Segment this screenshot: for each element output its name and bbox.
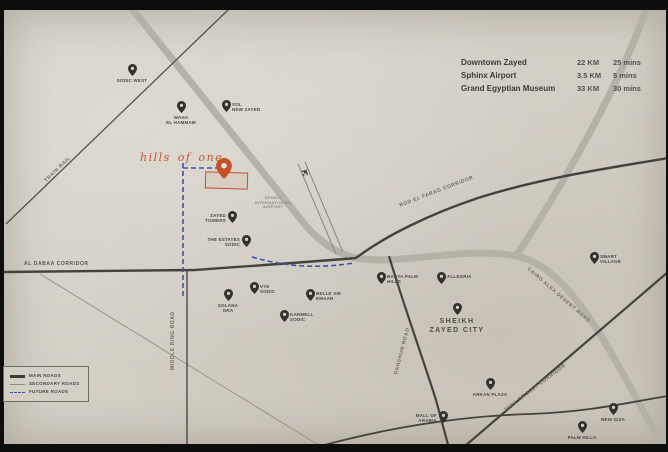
legend-row-secondary-roads: SECONDARY ROADS bbox=[10, 380, 82, 388]
karmell-sodic-label: KARMELLSODIC bbox=[290, 312, 313, 323]
palm-hills-pin-icon bbox=[578, 421, 587, 433]
allegria-pin-icon bbox=[437, 272, 446, 284]
mall-of-arabia-label: MALL OFARABIA bbox=[357, 413, 437, 424]
destination-time: 30 mins bbox=[613, 84, 655, 93]
arkan-plaza-label: ARKAN PLAZA bbox=[450, 392, 530, 397]
distance-row: Sphinx Airport 3.5 KM 5 mins bbox=[461, 69, 655, 82]
destination-distance: 22 KM bbox=[577, 58, 613, 67]
smart-village-label: SMARTVILLAGE bbox=[600, 254, 621, 265]
legend-row-main-roads: MAIN ROADS bbox=[10, 372, 82, 380]
future-road-swatch bbox=[10, 392, 25, 393]
destination-name: Downtown Zayed bbox=[461, 58, 577, 67]
arkan-plaza-pin-icon bbox=[486, 378, 495, 390]
frame-bottom bbox=[0, 444, 668, 452]
destination-distance: 33 KM bbox=[577, 84, 613, 93]
badya-palm-hills-label: BADYA PALMHILLS bbox=[387, 274, 418, 285]
sodic-west-pin-icon bbox=[128, 64, 137, 76]
destination-name: Sphinx Airport bbox=[461, 71, 577, 80]
secondary-road-swatch bbox=[10, 384, 25, 385]
mall-of-arabia-pin-icon bbox=[439, 411, 448, 423]
destination-name: Grand Egyptian Museum bbox=[461, 84, 577, 93]
waha-el-hammam-label: WAHAEL HAMMAM bbox=[141, 115, 221, 126]
vye-sodic-pin-icon bbox=[250, 282, 259, 294]
distance-table: Downtown Zayed 22 KM 25 mins Sphinx Airp… bbox=[461, 56, 655, 95]
allegria-label: ALLEGRIA bbox=[447, 274, 472, 279]
zayed-towers-pin-icon bbox=[228, 211, 237, 223]
vye-sodic-label: VYESODIC bbox=[260, 284, 275, 295]
badya-palm-hills-pin-icon bbox=[377, 272, 386, 284]
smart-village-pin-icon bbox=[590, 252, 599, 264]
destination-time: 25 mins bbox=[613, 58, 655, 67]
destination-distance: 3.5 KM bbox=[577, 71, 613, 80]
frame-left bbox=[0, 0, 4, 300]
sol-new-zayed-pin-icon bbox=[222, 100, 231, 112]
sodic-west-label: SODIC WEST bbox=[92, 78, 172, 83]
distance-row: Grand Egyptian Museum 33 KM 30 mins bbox=[461, 82, 655, 95]
legend-row-future-roads: FUTURE ROADS bbox=[10, 388, 82, 396]
main-road-swatch bbox=[10, 375, 25, 378]
the-estates-sodic-pin-icon bbox=[242, 235, 251, 247]
map-legend: MAIN ROADS SECONDARY ROADS FUTURE ROADS bbox=[3, 366, 89, 402]
karmell-sodic-pin-icon bbox=[280, 310, 289, 322]
waha-el-hammam-pin-icon bbox=[177, 101, 186, 113]
sol-new-zayed-label: SOLNEW ZAYED bbox=[232, 102, 260, 113]
distance-row: Downtown Zayed 22 KM 25 mins bbox=[461, 56, 655, 69]
destination-time: 5 mins bbox=[613, 71, 655, 80]
the-estates-sodic-label: THE ESTATESSODIC bbox=[160, 237, 240, 248]
belle-vie-emaar-label: BELLE VIEEMAAR bbox=[316, 291, 341, 302]
sheikh-zayed-city-pin-icon bbox=[453, 303, 462, 315]
solana-ora-label: SOLANAORA bbox=[188, 303, 268, 314]
palm-hills-label: PALM HILLS bbox=[542, 435, 622, 440]
solana-ora-pin-icon bbox=[224, 289, 233, 301]
frame-top bbox=[0, 0, 668, 10]
new-giza-pin-icon bbox=[609, 403, 618, 415]
belle-vie-emaar-pin-icon bbox=[306, 289, 315, 301]
sheikh-zayed-city-label: SHEIKHZAYED CITY bbox=[417, 317, 497, 336]
zayed-towers-label: ZAYEDTOWERS bbox=[146, 213, 226, 224]
